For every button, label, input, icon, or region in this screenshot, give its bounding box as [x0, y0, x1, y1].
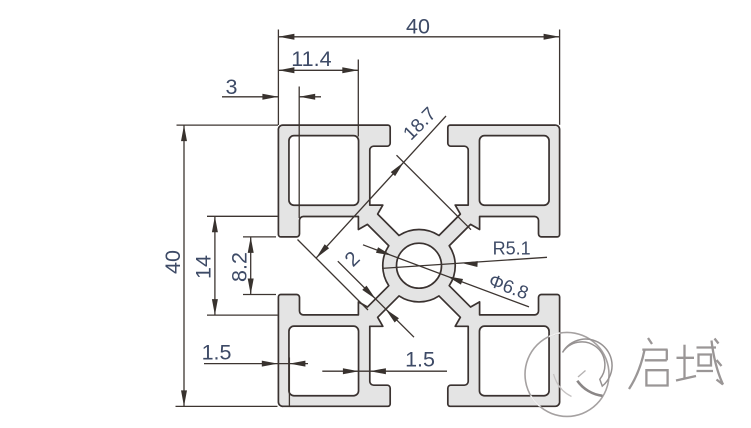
- svg-text:1.5: 1.5: [405, 348, 435, 372]
- svg-text:40: 40: [161, 250, 185, 274]
- svg-text:11.4: 11.4: [291, 47, 331, 71]
- svg-text:3: 3: [226, 75, 238, 99]
- svg-text:R5.1: R5.1: [493, 238, 531, 258]
- svg-text:1.5: 1.5: [202, 341, 232, 365]
- svg-text:8.2: 8.2: [228, 252, 252, 282]
- svg-text:14: 14: [191, 255, 215, 279]
- svg-text:40: 40: [406, 15, 430, 39]
